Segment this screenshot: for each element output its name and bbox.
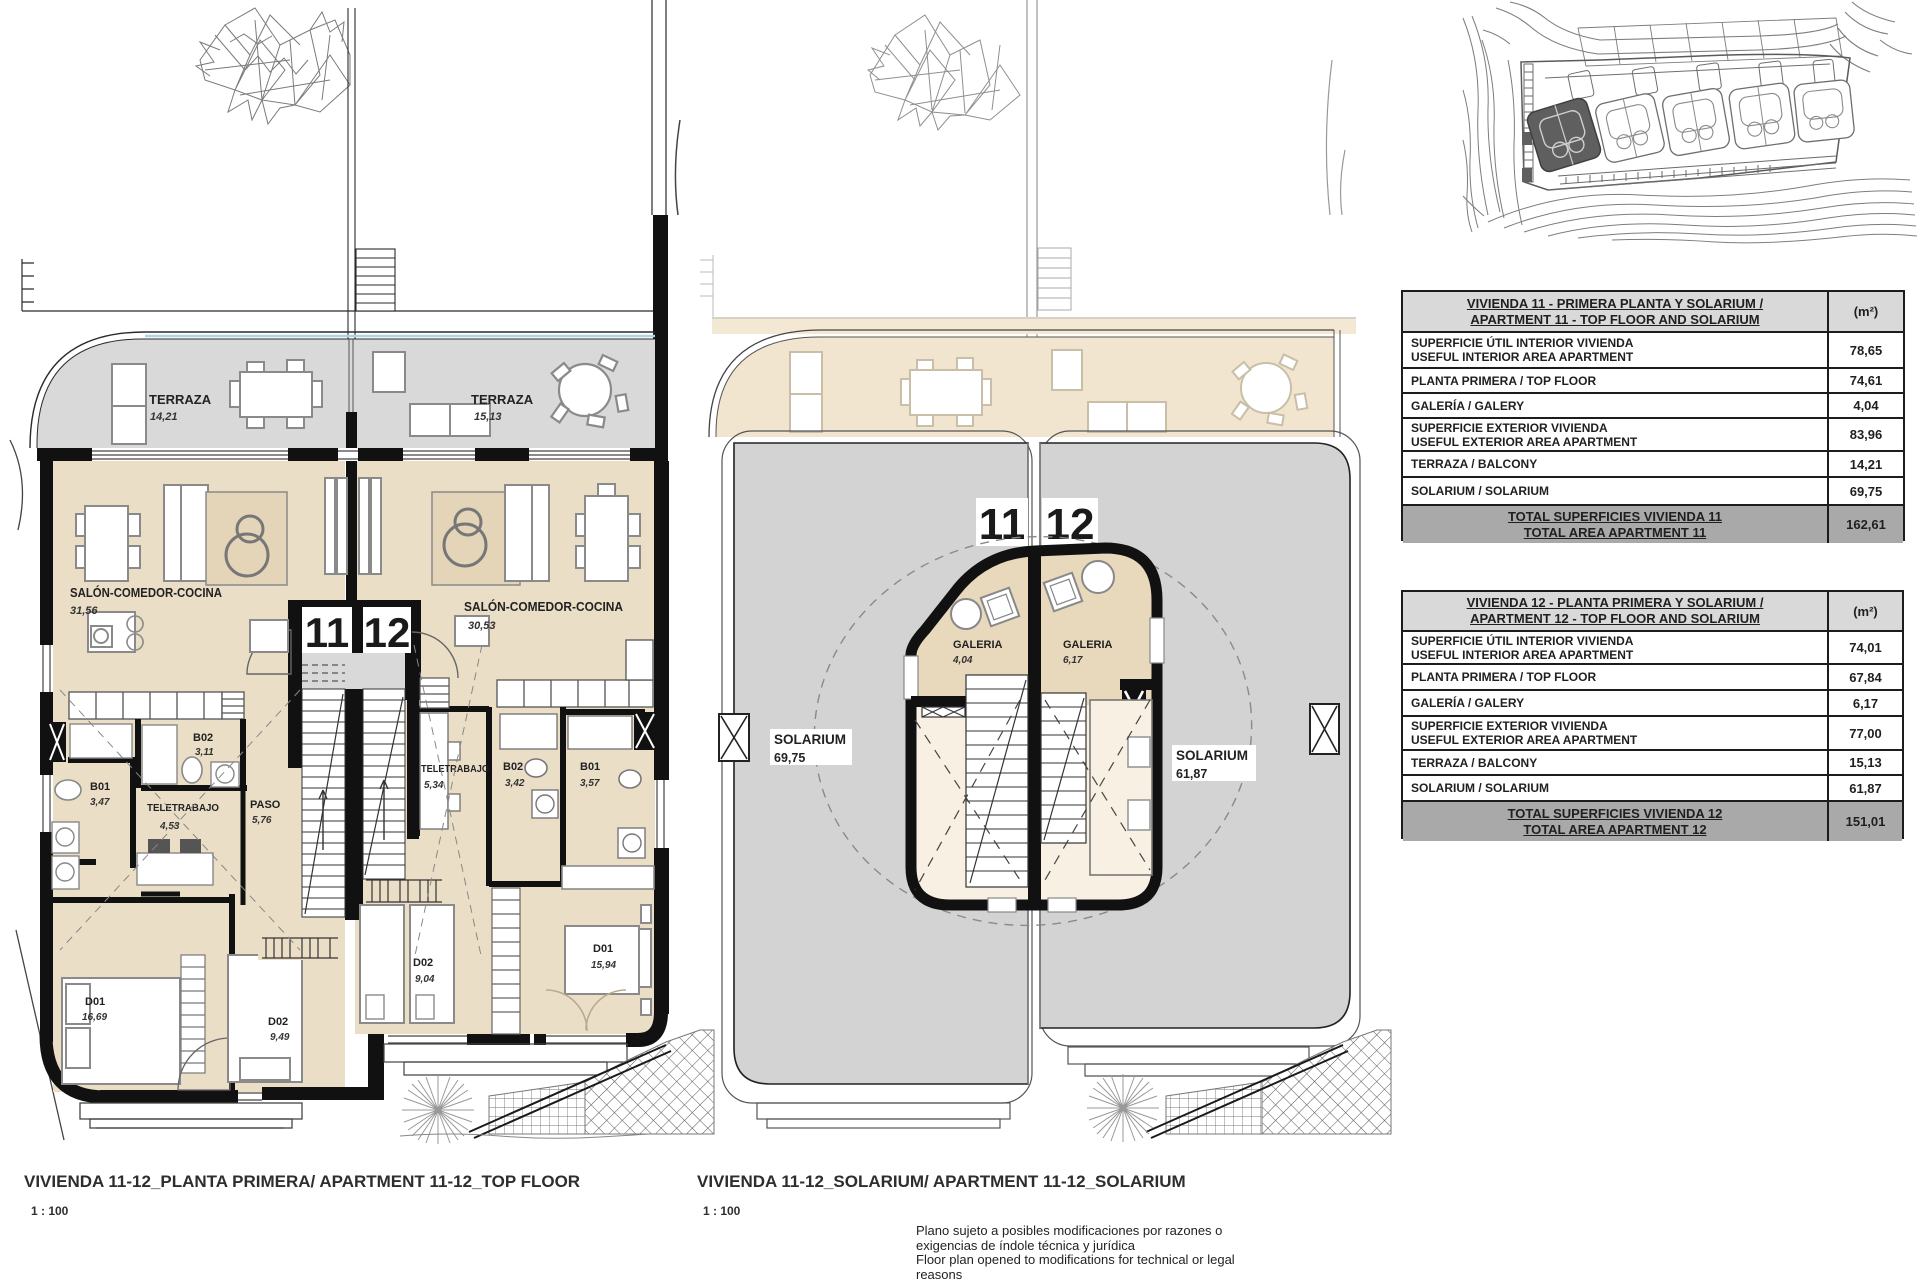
svg-text:B01: B01 [90, 781, 110, 793]
svg-text:69,75: 69,75 [774, 751, 805, 765]
svg-text:16,69: 16,69 [82, 1012, 107, 1023]
svg-text:3,47: 3,47 [90, 797, 110, 808]
svg-text:14,21: 14,21 [150, 411, 178, 423]
svg-text:5,34: 5,34 [424, 780, 444, 791]
svg-text:SOLARIUM: SOLARIUM [1176, 748, 1248, 763]
svg-text:D01: D01 [85, 996, 105, 1008]
svg-text:61,87: 61,87 [1176, 767, 1207, 781]
svg-text:SOLARIUM: SOLARIUM [774, 732, 846, 747]
svg-text:31,56: 31,56 [70, 605, 98, 617]
svg-text:11: 11 [305, 609, 349, 656]
svg-text:SALÓN-COMEDOR-COCINA: SALÓN-COMEDOR-COCINA [70, 585, 223, 600]
svg-text:SALÓN-COMEDOR-COCINA: SALÓN-COMEDOR-COCINA [464, 599, 624, 614]
svg-text:12: 12 [1046, 500, 1095, 549]
svg-text:B01: B01 [580, 761, 600, 773]
svg-text:B02: B02 [503, 761, 523, 773]
svg-text:D02: D02 [268, 1016, 288, 1028]
svg-text:9,04: 9,04 [415, 974, 435, 985]
svg-text:4,04: 4,04 [952, 655, 973, 666]
svg-text:5,76: 5,76 [252, 815, 272, 826]
svg-text:30,53: 30,53 [468, 620, 496, 632]
svg-text:3,42: 3,42 [505, 778, 525, 789]
svg-text:3,11: 3,11 [195, 747, 214, 758]
svg-text:9,49: 9,49 [270, 1032, 290, 1043]
svg-text:TELETRABAJO: TELETRABAJO [147, 802, 219, 814]
svg-text:6,17: 6,17 [1063, 655, 1083, 666]
svg-text:11: 11 [979, 500, 1026, 549]
svg-text:15,94: 15,94 [591, 960, 616, 971]
svg-text:D01: D01 [593, 943, 613, 955]
svg-text:3,57: 3,57 [580, 778, 600, 789]
svg-text:15,13: 15,13 [474, 411, 502, 423]
svg-text:TERRAZA: TERRAZA [471, 392, 534, 407]
svg-text:B02: B02 [193, 732, 213, 744]
svg-text:PASO: PASO [250, 799, 281, 811]
svg-text:GALERIA: GALERIA [1063, 639, 1113, 651]
svg-text:12: 12 [364, 609, 411, 656]
svg-text:GALERIA: GALERIA [953, 639, 1003, 651]
svg-text:TERRAZA: TERRAZA [149, 392, 212, 407]
svg-text:4,53: 4,53 [159, 821, 180, 832]
svg-text:D02: D02 [413, 957, 433, 969]
